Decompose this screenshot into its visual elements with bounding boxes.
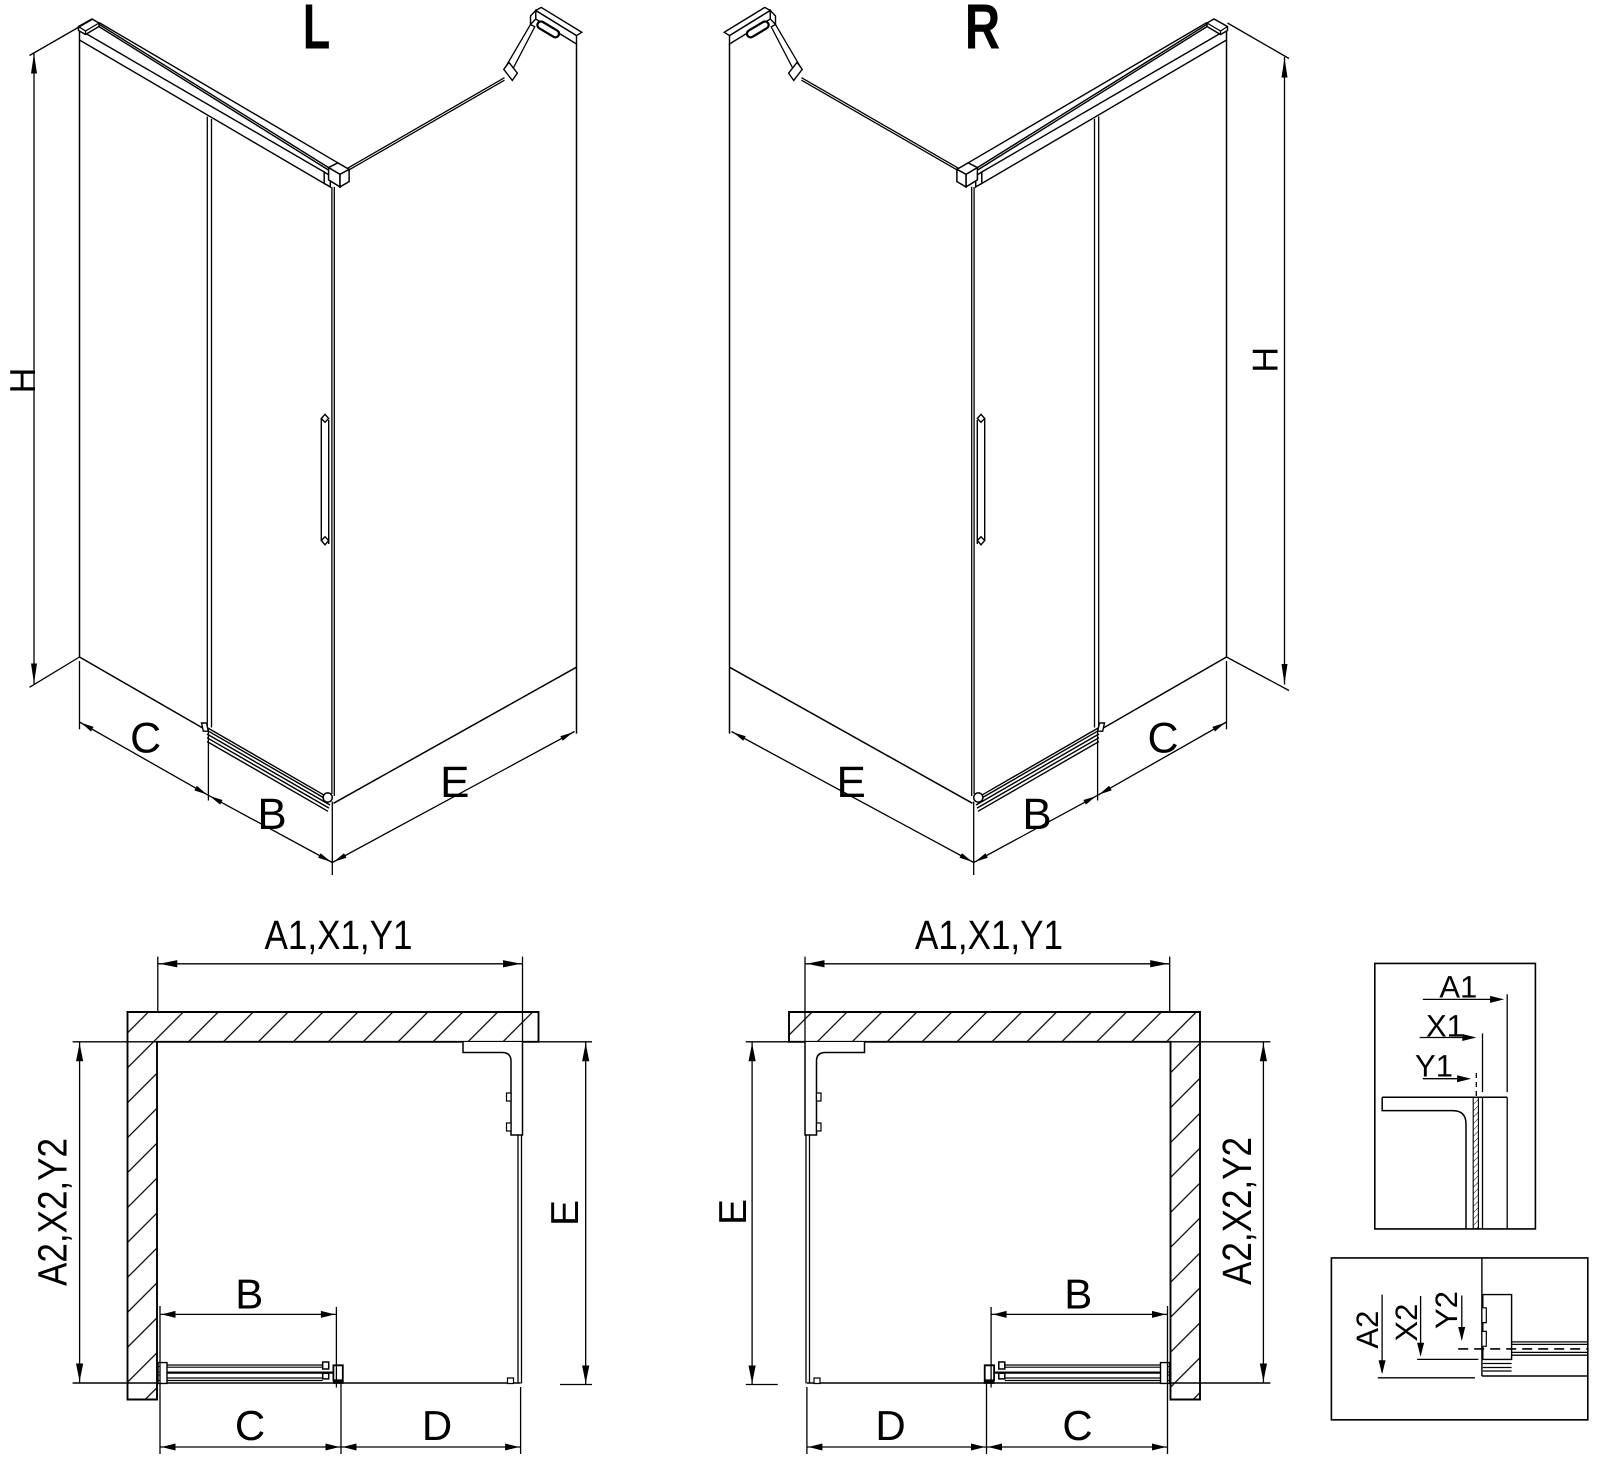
svg-text:A2,X2,Y2: A2,X2,Y2 <box>1214 1137 1260 1285</box>
svg-text:B: B <box>1022 790 1051 839</box>
svg-text:C: C <box>1147 715 1178 763</box>
svg-text:Y2: Y2 <box>1429 1291 1464 1329</box>
svg-text:A1,X1,Y1: A1,X1,Y1 <box>265 912 413 958</box>
svg-text:B: B <box>1064 1271 1092 1318</box>
svg-text:B: B <box>235 1271 263 1318</box>
svg-text:A1,X1,Y1: A1,X1,Y1 <box>915 912 1063 958</box>
svg-text:H: H <box>2 368 43 394</box>
svg-text:E: E <box>712 1199 755 1225</box>
svg-text:D: D <box>875 1402 905 1449</box>
svg-text:R: R <box>965 0 1001 62</box>
svg-text:B: B <box>257 790 286 839</box>
svg-text:C: C <box>130 715 161 763</box>
svg-text:A2,X2,Y2: A2,X2,Y2 <box>30 1138 76 1286</box>
svg-text:X2: X2 <box>1389 1304 1424 1342</box>
svg-text:H: H <box>1244 347 1285 373</box>
svg-text:E: E <box>440 758 469 807</box>
svg-text:X1: X1 <box>1426 1009 1464 1044</box>
svg-text:D: D <box>422 1402 452 1449</box>
svg-text:A2: A2 <box>1350 1311 1385 1349</box>
svg-text:L: L <box>303 0 331 62</box>
svg-text:C: C <box>1062 1402 1092 1449</box>
svg-text:E: E <box>837 758 866 807</box>
svg-text:C: C <box>235 1402 265 1449</box>
svg-text:E: E <box>544 1200 587 1226</box>
